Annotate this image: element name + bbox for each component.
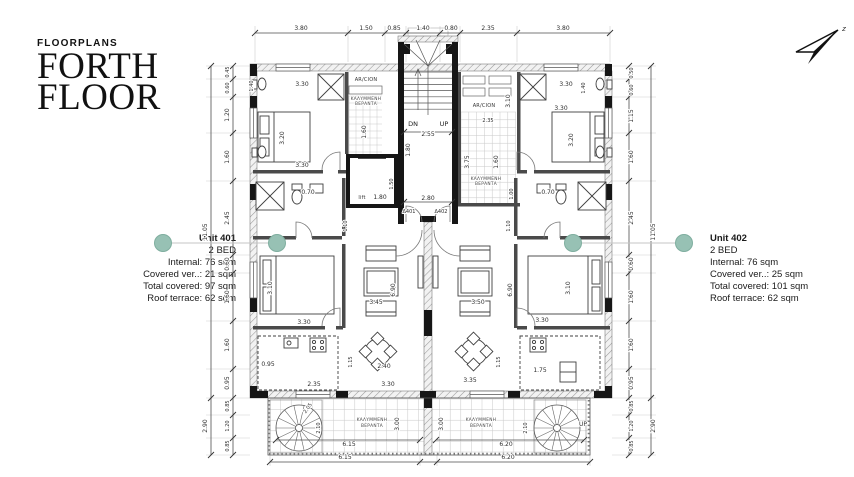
dim-label: 6.90 [390, 283, 397, 297]
dim-label: 1.60 [628, 290, 635, 304]
dim-label: 0.60 [628, 257, 635, 271]
staircase [404, 40, 452, 115]
dim-label: 0.85 [629, 400, 635, 411]
dim-label: 3.30 [559, 81, 573, 88]
dim-label: 1.80 [405, 143, 412, 157]
floorplan-page: FLOORPLANS FORTH FLOOR Unit 401 2 BED In… [0, 0, 854, 477]
dim-label: 1.80 [373, 194, 387, 201]
dim-label: 0.70 [301, 189, 315, 196]
dim-label: 2.35 [482, 118, 493, 124]
dim-label-total: 2.90 [650, 419, 657, 433]
mini-veranda-label: ΒΕΡΑΝΤΑ [475, 181, 497, 187]
dim-label: 3.20 [568, 133, 575, 147]
dim-label: 1.40 [581, 82, 587, 93]
dim-label: 3.35 [463, 377, 477, 384]
dim-label: 6.15 [338, 454, 352, 461]
dim-label: 6.20 [501, 454, 515, 461]
dim-label: 2.55 [421, 131, 435, 138]
arcion-left-label: AR/CION [355, 77, 378, 83]
dim-label: 3.10 [267, 281, 274, 295]
dim-label: 0.95 [261, 361, 275, 368]
north-arrow-icon: z [796, 25, 846, 64]
dim-label: 3.10 [505, 94, 512, 108]
dim-label-total: 11.05 [202, 223, 209, 240]
dim-label: 0.85 [387, 25, 401, 32]
dim-label: 0.50 [629, 67, 635, 78]
unit-401-marker [155, 235, 172, 252]
dim-label-total: 11.05 [650, 223, 657, 240]
dim-label: 2.45 [224, 211, 231, 225]
dim-label: 1.60 [361, 125, 368, 139]
dim-label: 1.60 [628, 150, 635, 164]
veranda-right-label: ΚΑΛΥΜΜΕΝΗ [466, 417, 497, 423]
dim-label: 0.95 [628, 376, 635, 390]
veranda-left-label: ΚΑΛΥΜΜΕΝΗ [357, 417, 388, 423]
dim-label: 3.75 [464, 155, 471, 169]
dim-label: 3.30 [554, 105, 568, 112]
unit-402-marker-plan [565, 235, 582, 252]
arcion-right-label: AR/CION [473, 103, 496, 109]
lift-label: lift [358, 195, 365, 201]
dim-label: 3.50 [471, 299, 485, 306]
dim-label: 1.50 [359, 25, 373, 32]
dim-label: 0.70 [541, 189, 555, 196]
floor-plan-drawing: z 3.80 1.50 0.85 1.40 0.80 2.35 3.80 0.4… [0, 0, 854, 477]
dim-label: 0.60 [224, 257, 231, 271]
dim-label: 0.60 [225, 82, 231, 93]
dim-label: 6.15 [342, 441, 356, 448]
dim-label: 3.45 [369, 299, 383, 306]
dim-label: 2.35 [481, 25, 495, 32]
dim-label: 2.35 [307, 381, 321, 388]
unit-402-marker [676, 235, 693, 252]
dim-label: 3.30 [535, 317, 549, 324]
dim-label: 1.75 [533, 367, 547, 374]
dim-label: 3.30 [295, 81, 309, 88]
dim-label: 6.20 [499, 441, 513, 448]
dim-label: 0.80 [444, 25, 458, 32]
dim-label: 1.20 [629, 420, 635, 431]
dim-label: 2.10 [316, 422, 322, 433]
dim-label: 1.60 [224, 150, 231, 164]
dim-label: 1.10 [343, 220, 349, 231]
dim-label: 1.40 [416, 25, 430, 32]
dim-label: 1.15 [628, 109, 635, 123]
dim-label: 3.10 [565, 281, 572, 295]
dim-label: 1.00 [509, 188, 515, 199]
dim-label: 3.00 [394, 417, 401, 431]
dim-label: 2.10 [523, 422, 529, 433]
dim-label: 3.00 [438, 417, 445, 431]
dim-label: 1.20 [224, 108, 231, 122]
dim-label: 2.40 [377, 363, 391, 370]
dim-label: 2.45 [628, 211, 635, 225]
dim-label: 1.60 [628, 338, 635, 352]
stair-up-label: UP [440, 120, 449, 128]
dim-label: 3.30 [297, 319, 311, 326]
veranda-left-label: ΒΕΡΑΝΤΑ [361, 423, 383, 429]
dim-label: 1.60 [493, 155, 500, 169]
dim-label: 1.10 [506, 220, 512, 231]
dim-label: 0.85 [225, 400, 231, 411]
dim-label: 3.30 [381, 381, 395, 388]
dim-label: 1.50 [389, 178, 395, 189]
door-401-label: Δ401 [403, 209, 416, 215]
dim-label: 1.20 [225, 420, 231, 431]
dim-label: 1.60 [224, 338, 231, 352]
veranda-right-label: ΒΕΡΑΝΤΑ [470, 423, 492, 429]
dim-label: 3.20 [279, 131, 286, 145]
north-letter: z [841, 25, 846, 33]
dim-label: 1.40 [249, 80, 255, 91]
dim-label: 0.60 [629, 84, 635, 95]
dim-label: 2.80 [421, 195, 435, 202]
dim-label: 1.60 [224, 290, 231, 304]
spiral-up-label: UP [579, 421, 587, 428]
dim-label-total: 2.90 [202, 419, 209, 433]
mini-veranda-label: ΒΕΡΑΝΤΑ [355, 101, 377, 107]
dim-label: 3.80 [294, 25, 308, 32]
dim-label: 0.85 [225, 440, 231, 451]
dim-label: 0.95 [224, 376, 231, 390]
dim-label: 1.15 [348, 356, 354, 367]
dim-label: 1.15 [496, 356, 502, 367]
dim-label: 0.45 [225, 66, 231, 77]
stair-dn-label: DN [408, 120, 418, 128]
dim-label: 6.90 [507, 283, 514, 297]
unit-401-marker-plan [269, 235, 286, 252]
dim-label: 3.30 [295, 162, 309, 169]
dim-label: 0.85 [629, 440, 635, 451]
door-402-label: Δ402 [435, 209, 448, 215]
dim-label: 3.80 [556, 25, 570, 32]
